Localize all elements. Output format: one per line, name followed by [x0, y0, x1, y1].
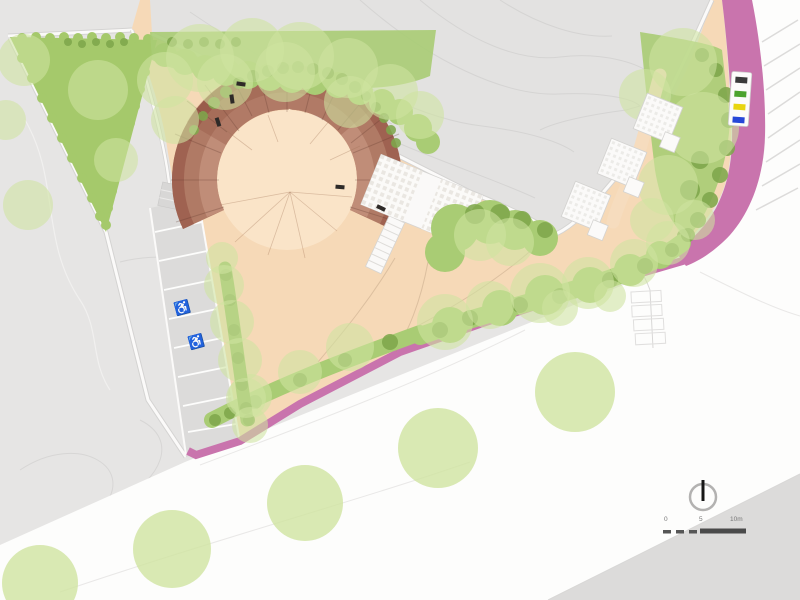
amphitheatre-floor — [217, 110, 357, 250]
scale-label-10m: 10m — [730, 516, 743, 523]
bin-glass — [734, 91, 746, 98]
bin-paper — [732, 117, 744, 124]
bin-station — [728, 71, 752, 126]
scale-label-5: 5 — [699, 516, 703, 523]
street-tree — [535, 352, 615, 432]
site-plan: ♿ ♿ — [0, 0, 800, 600]
street-tree — [398, 408, 478, 488]
bin-plastic — [733, 104, 745, 111]
street-tree — [267, 465, 343, 541]
street-tree — [133, 510, 211, 588]
bench — [335, 185, 344, 190]
bin-general — [735, 77, 747, 84]
scale-label-0: 0 — [664, 516, 668, 523]
